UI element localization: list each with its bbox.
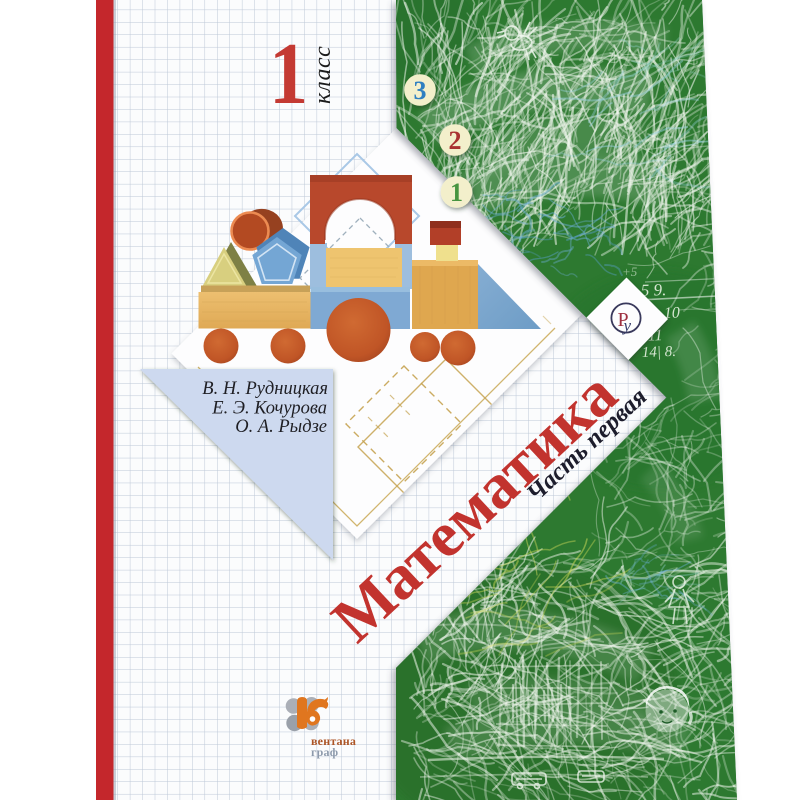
- svg-text:класс: класс: [310, 46, 336, 104]
- svg-text:1: 1: [269, 26, 308, 123]
- svg-text:граф: граф: [311, 745, 338, 759]
- svg-text:О. А. Рыдзе: О. А. Рыдзе: [235, 417, 327, 437]
- svg-text:В. Н. Рудницкая: В. Н. Рудницкая: [202, 379, 328, 399]
- svg-text:3: 3: [414, 76, 427, 105]
- svg-text:1: 1: [450, 178, 463, 207]
- svg-text:Е. Э. Кочурова: Е. Э. Кочурова: [211, 399, 327, 419]
- svg-text:у: у: [622, 316, 632, 335]
- svg-text:14| 8.: 14| 8.: [642, 344, 677, 361]
- svg-text:2: 2: [449, 126, 462, 155]
- svg-text:+5: +5: [622, 264, 638, 279]
